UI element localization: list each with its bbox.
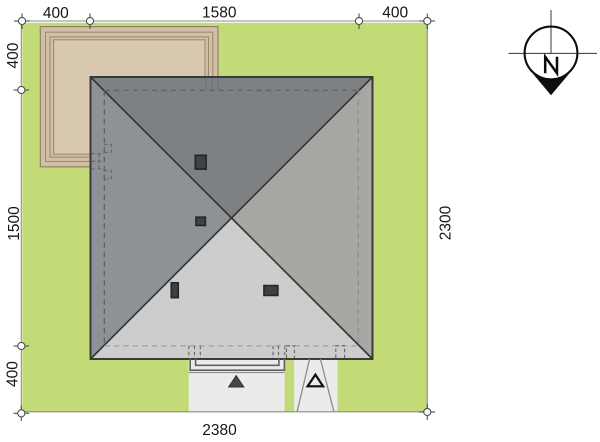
svg-text:400: 400 — [382, 5, 408, 22]
svg-text:400: 400 — [43, 5, 69, 22]
svg-text:1580: 1580 — [202, 5, 237, 22]
svg-text:1500: 1500 — [6, 206, 23, 241]
svg-text:2300: 2300 — [437, 205, 454, 240]
svg-text:2380: 2380 — [202, 422, 237, 439]
svg-text:400: 400 — [5, 42, 22, 68]
svg-text:400: 400 — [4, 361, 21, 387]
